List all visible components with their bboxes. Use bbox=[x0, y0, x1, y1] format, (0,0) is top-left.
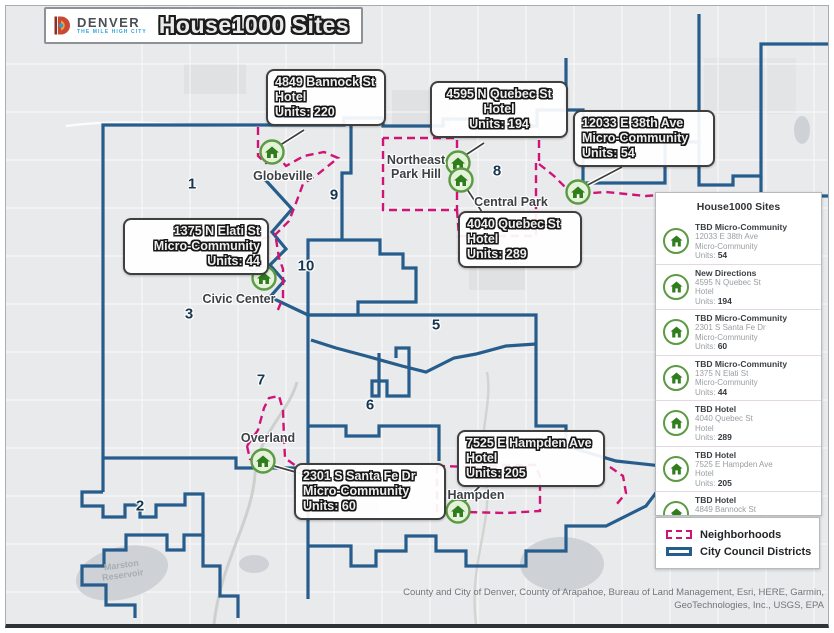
site-address: 1375 N Elati St bbox=[695, 369, 815, 379]
site-marker-santa-fe-2301[interactable] bbox=[252, 450, 275, 473]
site-marker-hampden-7525[interactable] bbox=[447, 500, 470, 523]
legend-label: City Council Districts bbox=[700, 546, 811, 558]
legend-row-districts: City Council Districts bbox=[666, 546, 819, 558]
site-type: Micro-Community bbox=[695, 242, 815, 252]
site-name: TBD Micro-Community bbox=[695, 222, 815, 232]
site-list-item[interactable]: TBD Micro-Community 1375 N Elati St Micr… bbox=[656, 355, 821, 401]
header-bar: DENVER THE MILE HIGH CITY House1000 Site… bbox=[44, 7, 363, 44]
site-units: Units: 289 bbox=[695, 433, 815, 443]
neighborhoods-swatch-icon bbox=[666, 530, 692, 539]
site-name: TBD Micro-Community bbox=[695, 359, 815, 369]
map-legend: Neighborhoods City Council Districts bbox=[655, 517, 820, 569]
house-icon bbox=[663, 319, 689, 345]
site-list-item[interactable]: TBD Hotel 4040 Quebec St Hotel Units: 28… bbox=[656, 400, 821, 446]
attribution-line: County and City of Denver, County of Ara… bbox=[403, 586, 824, 599]
legend-label: Neighborhoods bbox=[700, 529, 781, 541]
site-list-item[interactable]: TBD Micro-Community 12033 E 38th Ave Mic… bbox=[656, 219, 821, 264]
site-name: TBD Micro-Community bbox=[695, 313, 815, 323]
logo-name: DENVER bbox=[77, 16, 147, 29]
districts-swatch-icon bbox=[666, 547, 692, 556]
site-list-item[interactable]: TBD Hotel 7525 E Hampden Ave Hotel Units… bbox=[656, 446, 821, 492]
site-units: Units: 194 bbox=[695, 297, 815, 307]
site-type: Micro-Community bbox=[695, 333, 815, 343]
site-type: Hotel bbox=[695, 515, 815, 517]
site-item-text: New Directions 4595 N Quebec St Hotel Un… bbox=[695, 268, 815, 307]
site-marker-38th-ave-12033[interactable] bbox=[567, 181, 590, 204]
site-name: TBD Hotel bbox=[695, 495, 815, 505]
site-list-item[interactable]: TBD Micro-Community 2301 S Santa Fe Dr M… bbox=[656, 309, 821, 355]
site-address: 4040 Quebec St bbox=[695, 414, 815, 424]
site-list-item[interactable]: New Directions 4595 N Quebec St Hotel Un… bbox=[656, 264, 821, 310]
house-icon bbox=[663, 501, 689, 516]
site-type: Micro-Community bbox=[695, 378, 815, 388]
site-name: TBD Hotel bbox=[695, 450, 815, 460]
house-icon bbox=[663, 228, 689, 254]
attribution-line: GeoTechnologies, Inc., USGS, EPA bbox=[403, 599, 824, 612]
site-address: 2301 S Santa Fe Dr bbox=[695, 323, 815, 333]
house-icon bbox=[663, 410, 689, 436]
denver-logo-icon bbox=[54, 15, 72, 36]
logo-tagline: THE MILE HIGH CITY bbox=[77, 29, 147, 36]
site-type: Hotel bbox=[695, 287, 815, 297]
site-list-item[interactable]: TBD Hotel 4849 Bannock St Hotel Units: 2… bbox=[656, 491, 821, 516]
page-title: House1000 Sites bbox=[159, 12, 349, 39]
denver-logo: DENVER THE MILE HIGH CITY bbox=[54, 15, 147, 36]
site-item-text: TBD Micro-Community 12033 E 38th Ave Mic… bbox=[695, 222, 815, 261]
denver-logo-text: DENVER THE MILE HIGH CITY bbox=[77, 16, 147, 36]
app-window: 1981035762GlobevilleNortheast Park HillC… bbox=[0, 0, 834, 633]
sites-panel: House1000 Sites TBD Micro-Community 1203… bbox=[655, 192, 822, 516]
site-address: 7525 E Hampden Ave bbox=[695, 460, 815, 470]
site-marker-quebec-4040[interactable] bbox=[450, 169, 473, 192]
site-type: Hotel bbox=[695, 424, 815, 434]
site-address: 12033 E 38th Ave bbox=[695, 232, 815, 242]
house-icon bbox=[663, 365, 689, 391]
site-item-text: TBD Hotel 4849 Bannock St Hotel Units: 2… bbox=[695, 495, 815, 516]
site-item-text: TBD Micro-Community 2301 S Santa Fe Dr M… bbox=[695, 313, 815, 352]
site-address: 4595 N Quebec St bbox=[695, 278, 815, 288]
map-attribution: County and City of Denver, County of Ara… bbox=[403, 586, 824, 612]
site-type: Hotel bbox=[695, 469, 815, 479]
site-marker-bannock-4849[interactable] bbox=[261, 141, 284, 164]
site-item-text: TBD Hotel 7525 E Hampden Ave Hotel Units… bbox=[695, 450, 815, 489]
site-units: Units: 54 bbox=[695, 251, 815, 261]
site-item-text: TBD Hotel 4040 Quebec St Hotel Units: 28… bbox=[695, 404, 815, 443]
house-icon bbox=[663, 274, 689, 300]
site-name: TBD Hotel bbox=[695, 404, 815, 414]
legend-row-neighborhoods: Neighborhoods bbox=[666, 529, 819, 541]
site-units: Units: 205 bbox=[695, 479, 815, 489]
site-address: 4849 Bannock St bbox=[695, 505, 815, 515]
site-marker-elati-1375[interactable] bbox=[253, 267, 276, 290]
site-item-text: TBD Micro-Community 1375 N Elati St Micr… bbox=[695, 359, 815, 398]
site-units: Units: 60 bbox=[695, 342, 815, 352]
sites-panel-title: House1000 Sites bbox=[656, 193, 821, 219]
house-icon bbox=[663, 456, 689, 482]
sites-list: TBD Micro-Community 12033 E 38th Ave Mic… bbox=[656, 219, 821, 516]
site-name: New Directions bbox=[695, 268, 815, 278]
site-units: Units: 44 bbox=[695, 388, 815, 398]
